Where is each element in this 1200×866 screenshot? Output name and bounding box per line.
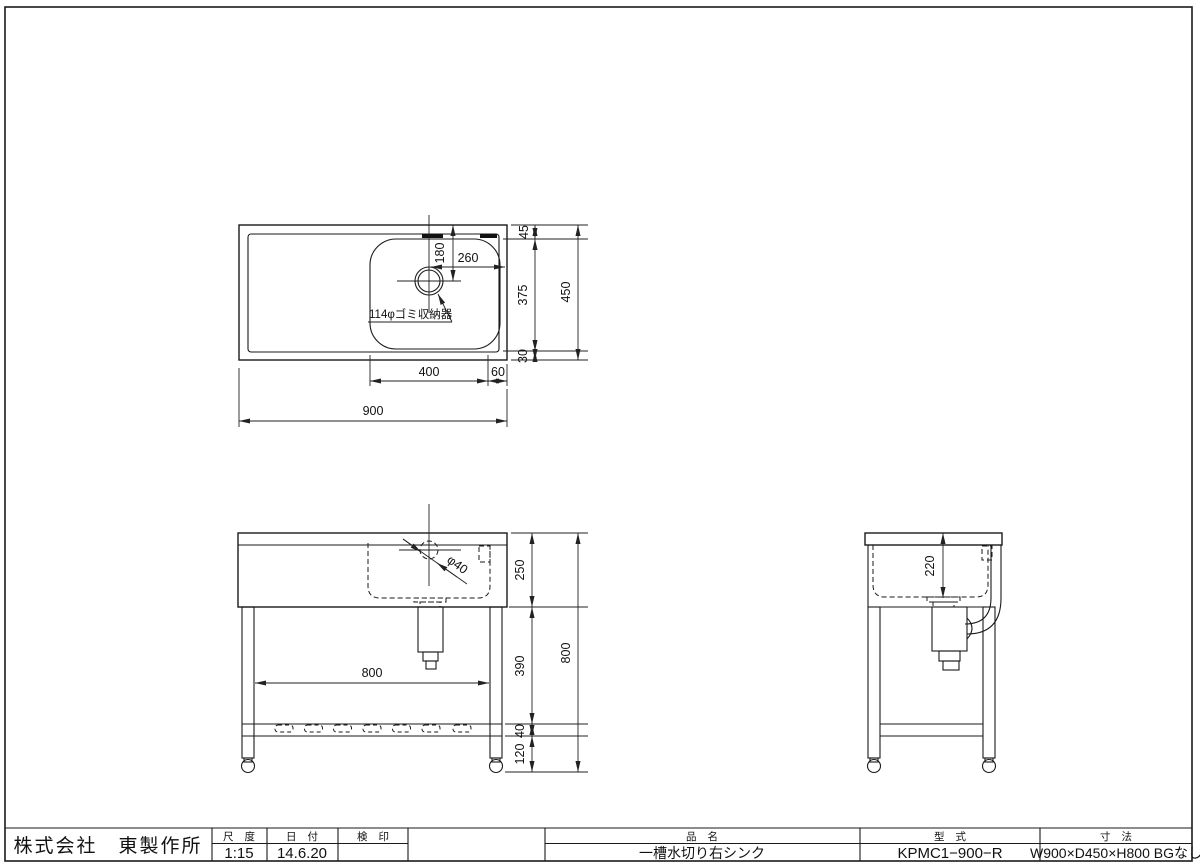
sheet-border (5, 7, 1192, 861)
dim-375: 375 (516, 285, 530, 306)
technical-drawing: 45 375 30 450 180 260 400 60 900 (0, 0, 1200, 866)
dim-900: 900 (363, 404, 384, 418)
size-label: 寸 法 (1100, 830, 1136, 843)
dim-450: 450 (559, 282, 573, 303)
plan-view-dimensions: 45 375 30 450 180 260 400 60 900 (239, 225, 588, 427)
dim-40: 40 (513, 724, 527, 738)
drawing-sheet: 45 375 30 450 180 260 400 60 900 (0, 0, 1200, 866)
company-name: 株式会社 東製作所 (13, 835, 202, 857)
product-name-value: 一槽水切り右シンク (639, 845, 765, 861)
dim-120: 120 (513, 744, 527, 765)
stamp-label: 検 印 (357, 830, 393, 843)
product-name-label: 品 名 (686, 830, 722, 843)
dim-45: 45 (517, 225, 531, 239)
front-view-linework: φ40 (238, 504, 507, 773)
side-view-dimensions: 220 (923, 533, 943, 598)
dim-180: 180 (433, 243, 447, 264)
model-label: 型 式 (934, 830, 970, 843)
dim-30: 30 (516, 349, 530, 363)
dim-390: 390 (513, 656, 527, 677)
scale-label: 尺 度 (223, 830, 259, 843)
side-view: 220 (865, 533, 1002, 773)
dim-60: 60 (491, 365, 505, 379)
scale-value: 1:15 (224, 845, 253, 862)
date-label: 日 付 (286, 830, 322, 843)
dim-260: 260 (458, 251, 479, 265)
dim-drain-diameter: φ40 (444, 553, 470, 577)
model-value: KPMC1−900−R (897, 845, 1002, 862)
plan-view: 45 375 30 450 180 260 400 60 900 (239, 215, 588, 427)
dim-800-height: 800 (559, 643, 573, 664)
dim-800-width: 800 (362, 666, 383, 680)
drain-strainer-label: 114φゴミ収納器 (369, 307, 453, 321)
shelf-slots (275, 725, 471, 732)
date-value: 14.6.20 (277, 845, 327, 862)
dim-220: 220 (923, 556, 937, 577)
dim-250: 250 (513, 560, 527, 581)
title-block: 株式会社 東製作所 尺 度 1:15 日 付 14.6.20 検 印 品 名 一… (5, 828, 1200, 862)
dim-400: 400 (419, 365, 440, 379)
front-view: φ40 250 390 40 120 800 800 (238, 504, 588, 773)
plan-view-linework (239, 215, 507, 360)
size-value: W900×D450×H800 BGなし (1030, 845, 1200, 861)
